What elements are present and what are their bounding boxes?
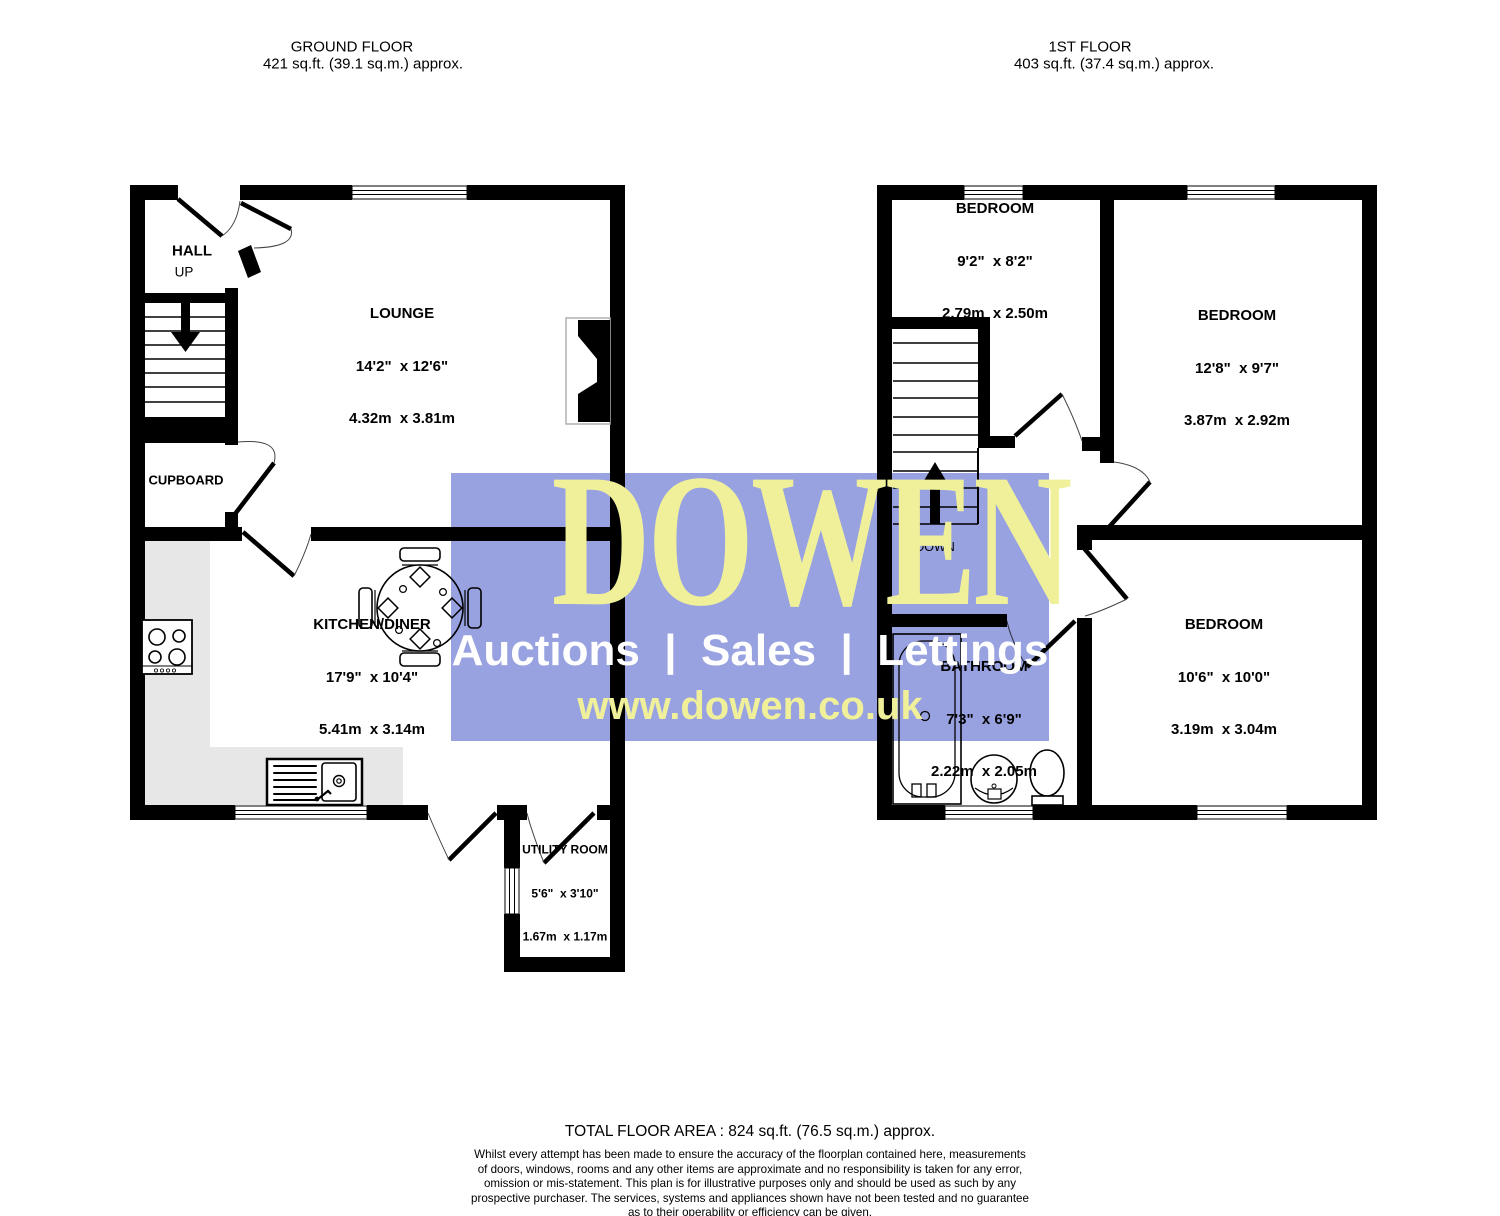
floorplan-page: DOWEN Auctions | Sales | Lettings www.do…: [0, 0, 1500, 1216]
stairs-up-label: UP: [175, 265, 194, 280]
disclaimer-line: as to their operability or efficiency ca…: [0, 1206, 1500, 1216]
watermark-website: www.dowen.co.uk: [451, 685, 1049, 727]
disclaimer-line: of doors, windows, rooms and any other i…: [0, 1163, 1500, 1178]
bedroom1-label: BEDROOM 9'2" x 8'2" 2.79m x 2.50m: [942, 165, 1048, 358]
kitchen-diner-label: KITCHEN/DINER 17'9" x 10'4" 5.41m x 3.14…: [313, 581, 431, 774]
ground-floor-area: 421 sq.ft. (39.1 sq.m.) approx.: [263, 56, 463, 73]
disclaimer-line: prospective purchaser. The services, sys…: [0, 1192, 1500, 1207]
bedroom2-label: BEDROOM 12'8" x 9'7" 3.87m x 2.92m: [1184, 272, 1290, 465]
first-floor-title: 1ST FLOOR: [1048, 39, 1131, 56]
watermark-tagline: Auctions | Sales | Lettings: [451, 628, 1049, 674]
total-floor-area: TOTAL FLOOR AREA : 824 sq.ft. (76.5 sq.m…: [0, 1122, 1500, 1141]
utility-room-label: UTILITY ROOM 5'6" x 3'10" 1.67m x 1.17m: [522, 813, 608, 973]
watermark: DOWEN Auctions | Sales | Lettings www.do…: [451, 473, 1049, 741]
ground-floor-title: GROUND FLOOR: [291, 39, 414, 56]
disclaimer-line: omission or mis-statement. This plan is …: [0, 1177, 1500, 1192]
watermark-brand: DOWEN: [451, 461, 1049, 621]
bedroom3-label: BEDROOM 10'6" x 10'0" 3.19m x 3.04m: [1171, 581, 1277, 774]
disclaimer-line: Whilst every attempt has been made to en…: [0, 1148, 1500, 1163]
hall-label: HALL: [172, 242, 212, 260]
cupboard-label: CUPBOARD: [148, 471, 223, 489]
footer: TOTAL FLOOR AREA : 824 sq.ft. (76.5 sq.m…: [0, 1122, 1500, 1216]
first-floor-area: 403 sq.ft. (37.4 sq.m.) approx.: [1014, 56, 1214, 73]
lounge-label: LOUNGE 14'2" x 12'6" 4.32m x 3.81m: [349, 270, 455, 463]
